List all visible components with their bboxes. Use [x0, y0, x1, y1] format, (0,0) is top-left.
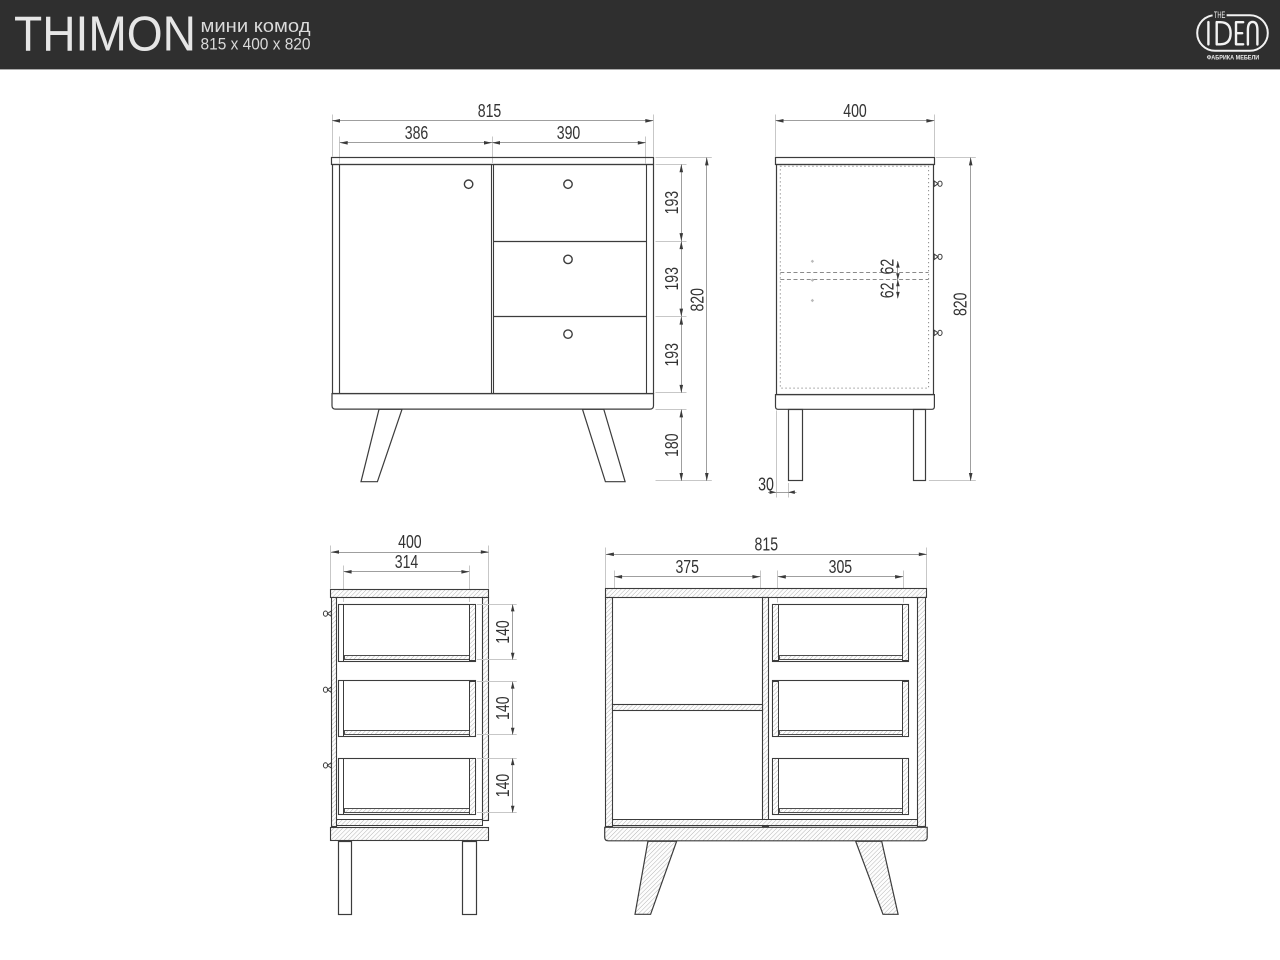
svg-text:193: 193 — [661, 191, 682, 215]
svg-text:815: 815 — [755, 533, 779, 554]
svg-text:375: 375 — [675, 556, 699, 577]
svg-text:400: 400 — [398, 531, 422, 552]
svg-text:386: 386 — [405, 122, 429, 143]
svg-text:193: 193 — [661, 343, 682, 367]
svg-text:400: 400 — [843, 100, 867, 121]
svg-text:815 x 400 x 820: 815 x 400 x 820 — [201, 34, 311, 53]
svg-text:THIMON: THIMON — [14, 8, 196, 62]
svg-text:193: 193 — [661, 267, 682, 291]
svg-text:314: 314 — [395, 551, 419, 572]
svg-text:30: 30 — [758, 474, 774, 495]
svg-text:140: 140 — [492, 696, 513, 720]
svg-text:62: 62 — [877, 283, 898, 299]
svg-text:THE: THE — [1214, 10, 1226, 21]
svg-text:390: 390 — [557, 122, 581, 143]
svg-text:820: 820 — [687, 288, 708, 312]
svg-text:62: 62 — [877, 259, 898, 275]
svg-text:815: 815 — [478, 100, 502, 121]
svg-text:140: 140 — [492, 620, 513, 644]
svg-text:180: 180 — [661, 433, 682, 457]
svg-text:ФАБРИКА МЕБЕЛИ: ФАБРИКА МЕБЕЛИ — [1207, 55, 1260, 62]
svg-text:305: 305 — [829, 556, 853, 577]
svg-text:140: 140 — [492, 774, 513, 798]
svg-text:мини комод: мини комод — [201, 16, 312, 36]
svg-text:820: 820 — [949, 293, 970, 317]
